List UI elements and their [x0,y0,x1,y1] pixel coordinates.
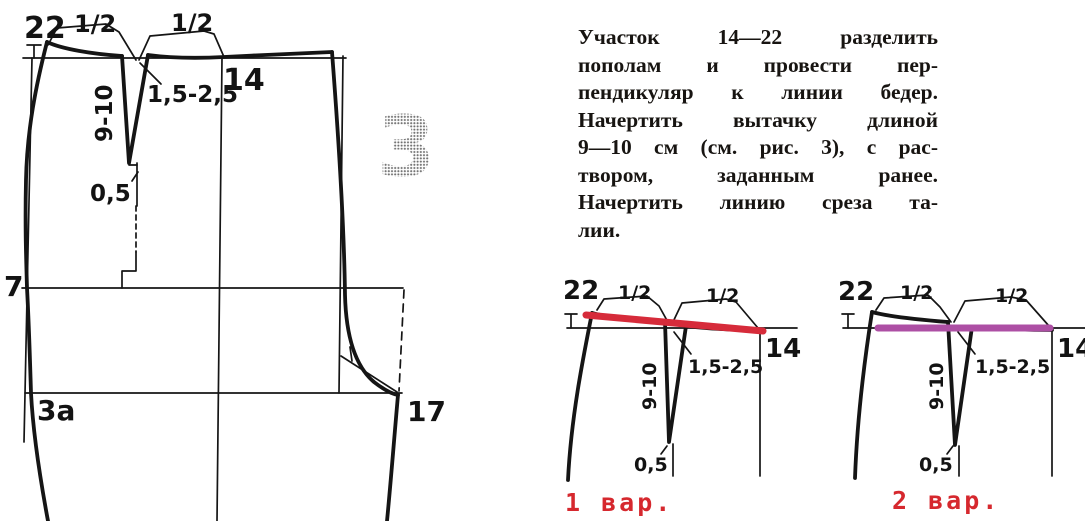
label-half-left: 1/2 [900,282,933,304]
label-point-22: 22 [24,11,66,46]
figure-number: 3 [377,98,435,196]
label-half-right: 1/2 [171,9,213,37]
waist-seam-right [148,52,332,58]
label-half-left: 1/2 [618,282,651,304]
inseam-line [387,395,398,521]
label-point-17: 17 [407,395,446,428]
instruction-line: лии. [578,217,938,245]
label-point-22: 22 [838,277,874,307]
label-half-right: 1/2 [995,285,1028,307]
label-half-right: 1/2 [706,285,739,307]
instruction-line: пендикуляр к линии бедер. [578,79,938,107]
label-point-22: 22 [563,276,599,306]
crease-line-14 [217,58,222,521]
variant-1-diagram: 22 1/2 1/2 14 1,5-2,5 9-10 0,5 1 вар. [555,268,817,521]
waist-dart [665,322,686,442]
point-22-tick [565,314,577,328]
label-dart-opening: 1,5-2,5 [688,356,763,378]
variant-2-outline [855,312,1052,478]
outseam-line [568,313,592,480]
instruction-paragraph: Участок 14—22 разделить пополам и провес… [578,24,938,244]
instruction-line: Начертить вытачку длиной [578,107,938,135]
label-dart-length: 9-10 [92,84,118,142]
label-offset: 0,5 [90,181,131,207]
outseam-line [855,312,872,478]
offset-leader [661,446,667,454]
label-offset: 0,5 [919,454,953,476]
label-half-left: 1/2 [74,10,116,38]
variant-2-caption: 2 вар. [892,486,1000,515]
outseam-line [26,42,48,521]
instruction-line: твором, заданным ранее. [578,162,938,190]
label-point-3a: 3а [37,394,75,427]
crotch-extension-guide [399,290,404,391]
label-point-14: 14 [1057,334,1085,364]
instruction-line: Начертить линию среза та- [578,189,938,217]
offset-leader [947,446,953,454]
perpendicular-step-mark [122,252,136,288]
point-22-tick [842,314,854,328]
instruction-line: 9—10 см (см. рис. 3), с рас- [578,134,938,162]
label-dart-length: 9-10 [639,362,661,410]
instruction-line: Участок 14—22 разделить [578,24,938,52]
variant-1-labels: 22 1/2 1/2 14 1,5-2,5 9-10 0,5 1 вар. [563,276,801,517]
variant-2-diagram: 22 1/2 1/2 14 1,5-2,5 9-10 0,5 2 вар. [828,268,1085,521]
waist-seam-left [872,312,948,322]
waist-dart [122,55,148,163]
scanned-pattern-page: 22 1/2 1/2 14 1,5-2,5 9-10 0,5 7 3а 17 3… [0,0,1085,521]
point-22-tick [27,45,41,58]
instruction-line: пополам и провести пер- [578,52,938,80]
label-offset: 0,5 [634,454,668,476]
waist-dart [948,322,972,445]
main-pattern-diagram: 22 1/2 1/2 14 1,5-2,5 9-10 0,5 7 3а 17 3 [0,0,560,521]
variant-1-caption: 1 вар. [565,488,673,517]
corner-bisector-line [341,356,397,392]
label-point-7: 7 [4,270,23,303]
label-point-14: 14 [765,334,801,364]
label-dart-opening: 1,5-2,5 [147,82,238,108]
main-diagram-labels: 22 1/2 1/2 14 1,5-2,5 9-10 0,5 7 3а 17 3 [4,9,446,428]
label-dart-length: 9-10 [926,362,948,410]
label-dart-opening: 1,5-2,5 [975,356,1050,378]
